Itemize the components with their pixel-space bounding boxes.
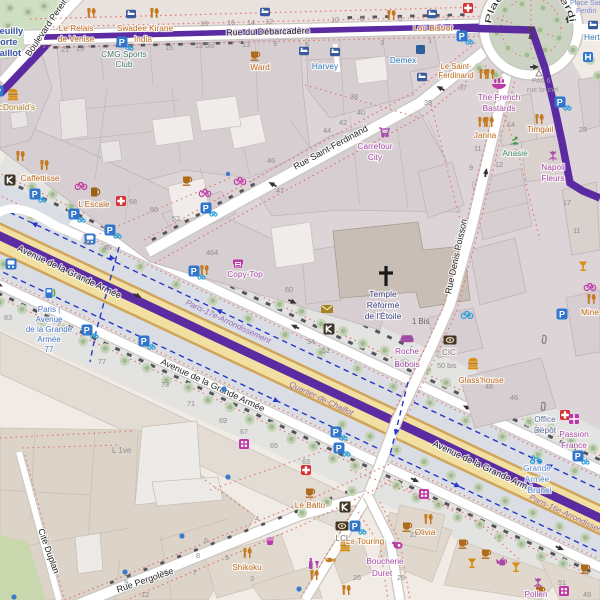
svg-text:12: 12: [265, 17, 273, 26]
svg-text:15: 15: [165, 43, 173, 52]
svg-text:PA6 6: PA6 6: [532, 78, 551, 85]
svg-text:Club: Club: [115, 59, 132, 69]
svg-text:9: 9: [469, 163, 473, 172]
svg-text:Maillot: Maillot: [0, 48, 21, 58]
svg-text:66: 66: [150, 205, 158, 214]
svg-text:52: 52: [322, 346, 330, 355]
svg-text:Bastards: Bastards: [483, 103, 516, 113]
svg-text:India: India: [134, 34, 152, 44]
svg-text:Paris |: Paris |: [38, 305, 61, 314]
svg-text:69: 69: [219, 416, 227, 425]
svg-text:28: 28: [579, 125, 587, 134]
svg-text:21: 21: [61, 45, 69, 54]
svg-text:19: 19: [76, 44, 84, 53]
svg-text:39: 39: [424, 98, 432, 107]
svg-text:L'Escale: L'Escale: [78, 199, 109, 209]
svg-text:26: 26: [353, 573, 361, 582]
svg-text:10: 10: [331, 15, 339, 24]
svg-text:71: 71: [187, 399, 195, 408]
svg-text:Shikoku: Shikoku: [232, 562, 262, 572]
svg-text:464: 464: [206, 248, 218, 257]
svg-text:3: 3: [380, 38, 384, 47]
svg-text:44: 44: [323, 126, 331, 135]
svg-text:49: 49: [583, 590, 591, 599]
svg-text:Pollen: Pollen: [524, 589, 547, 599]
svg-text:5: 5: [225, 553, 229, 562]
svg-text:14: 14: [247, 18, 255, 27]
svg-text:46: 46: [267, 156, 275, 165]
svg-text:LCL: LCL: [336, 534, 351, 543]
svg-text:Avenue: Avenue: [36, 315, 64, 324]
svg-text:54: 54: [307, 337, 315, 346]
svg-text:Roche: Roche: [395, 346, 419, 356]
svg-text:Armée: Armée: [525, 474, 550, 484]
svg-text:1: 1: [428, 36, 432, 45]
svg-text:- Brunel: - Brunel: [522, 485, 551, 495]
svg-text:37: 37: [459, 83, 467, 92]
svg-text:Ferdin: Ferdin: [576, 6, 596, 15]
svg-text:77: 77: [45, 345, 54, 354]
svg-text:Fleurs: Fleurs: [541, 173, 564, 183]
svg-text:Napoli: Napoli: [541, 162, 565, 172]
svg-text:27: 27: [410, 530, 418, 539]
svg-text:Grande: Grande: [523, 463, 551, 473]
svg-text:City: City: [368, 152, 383, 162]
svg-text:46: 46: [510, 393, 518, 402]
svg-text:38: 38: [350, 92, 358, 101]
svg-text:France: France: [561, 440, 587, 450]
svg-text:6: 6: [204, 536, 208, 545]
svg-text:7: 7: [193, 568, 197, 577]
svg-text:9: 9: [273, 39, 277, 48]
svg-text:63: 63: [302, 457, 310, 466]
svg-text:1 Bis: 1 Bis: [412, 317, 429, 326]
svg-text:Janna: Janna: [474, 130, 497, 140]
svg-text:Mine: Mine: [581, 307, 599, 317]
svg-text:Office: Office: [534, 414, 556, 424]
svg-text:Passion: Passion: [559, 429, 589, 439]
svg-text:Le Touring: Le Touring: [346, 536, 385, 546]
svg-text:40: 40: [357, 108, 365, 117]
svg-text:83: 83: [4, 313, 12, 322]
svg-text:Porte: Porte: [0, 37, 18, 47]
svg-text:CMG Sports: CMG Sports: [101, 49, 147, 59]
svg-text:60: 60: [285, 285, 293, 294]
svg-text:Armée: Armée: [37, 335, 61, 344]
svg-text:de Venise: de Venise: [58, 34, 95, 44]
svg-text:Glass'house: Glass'house: [458, 375, 504, 385]
svg-text:17: 17: [563, 198, 571, 207]
svg-text:Réformé: Réformé: [367, 300, 400, 310]
svg-text:8: 8: [360, 14, 364, 23]
svg-text:Caffettisse: Caffettisse: [20, 173, 59, 183]
svg-text:48: 48: [485, 382, 493, 391]
svg-text:Demex: Demex: [390, 55, 417, 65]
svg-text:4: 4: [255, 514, 259, 523]
svg-text:The French: The French: [478, 92, 521, 102]
svg-text:Neuilly: Neuilly: [0, 26, 24, 36]
svg-text:Bobois: Bobois: [394, 359, 419, 369]
svg-text:Copy-Top: Copy-Top: [227, 269, 263, 279]
svg-text:2: 2: [445, 13, 449, 22]
svg-text:67: 67: [240, 427, 248, 436]
svg-text:46: 46: [103, 243, 111, 252]
svg-text:Duret: Duret: [372, 568, 393, 578]
svg-text:68: 68: [129, 197, 137, 206]
svg-text:65: 65: [270, 441, 278, 450]
svg-text:Swadee Kirane: Swadee Kirane: [117, 23, 174, 33]
svg-text:CIC: CIC: [442, 348, 456, 357]
svg-text:73: 73: [161, 380, 169, 389]
svg-text:Hertz: Hertz: [584, 32, 600, 42]
svg-text:11: 11: [474, 144, 482, 153]
svg-text:77: 77: [98, 357, 106, 366]
svg-text:28: 28: [397, 573, 405, 582]
svg-text:L 1ve: L 1ve: [112, 446, 132, 455]
svg-text:13 bis: 13 bis: [195, 41, 215, 50]
svg-text:52: 52: [172, 214, 180, 223]
svg-text:47: 47: [276, 186, 284, 195]
svg-text:Le Saint-: Le Saint-: [440, 62, 472, 71]
svg-text:cDonald's: cDonald's: [0, 102, 35, 112]
svg-text:de l'Étoile: de l'Étoile: [365, 311, 402, 321]
svg-text:8: 8: [196, 551, 200, 560]
svg-text:Harvey: Harvey: [312, 61, 339, 71]
svg-text:Boucherie: Boucherie: [366, 556, 404, 566]
svg-text:rue brunel: rue brunel: [527, 87, 559, 94]
svg-text:Temple: Temple: [369, 289, 397, 299]
svg-text:50 bis: 50 bis: [437, 361, 457, 370]
svg-text:Anasie: Anasie: [502, 148, 528, 158]
svg-text:14: 14: [507, 120, 515, 129]
svg-text:12: 12: [495, 160, 503, 169]
svg-text:3: 3: [250, 574, 254, 583]
svg-text:42: 42: [339, 118, 347, 127]
svg-text:Le Relais: Le Relais: [59, 23, 94, 33]
svg-text:5: 5: [305, 40, 309, 49]
svg-text:13: 13: [242, 40, 250, 49]
svg-text:51: 51: [558, 578, 566, 587]
svg-text:de la Grande: de la Grande: [26, 325, 73, 334]
svg-text:Ward: Ward: [250, 62, 270, 72]
svg-text:6: 6: [398, 14, 402, 23]
svg-text:9: 9: [124, 578, 128, 587]
svg-text:Timgail: Timgail: [527, 124, 554, 134]
svg-text:Dépôt: Dépôt: [534, 425, 557, 435]
svg-text:12: 12: [141, 590, 149, 599]
svg-text:Carrefour: Carrefour: [357, 141, 392, 151]
svg-text:Le Balto: Le Balto: [295, 500, 326, 510]
svg-text:48: 48: [83, 238, 91, 247]
svg-text:Ferdinand: Ferdinand: [438, 71, 473, 80]
svg-text:18: 18: [200, 19, 208, 28]
svg-text:11: 11: [573, 226, 581, 235]
svg-text:16: 16: [227, 18, 235, 27]
svg-text:Lou Bistrot: Lou Bistrot: [413, 23, 453, 33]
svg-text:Rue du Débarcadère: Rue du Débarcadère: [226, 26, 310, 38]
